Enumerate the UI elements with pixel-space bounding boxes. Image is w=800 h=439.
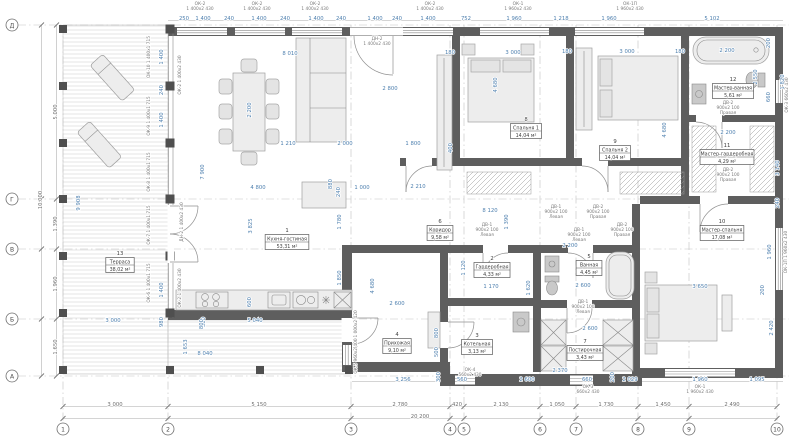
opening-tag: ОК-21 400х2 430 <box>186 1 213 12</box>
room-name: Мастер-гардеробная <box>701 151 754 157</box>
sofa-group <box>296 38 346 208</box>
dim-label: 8 040 <box>197 351 213 357</box>
opening-tag: ДН-2 1 400х2 430 <box>179 202 185 242</box>
grid-bubble-label: 2 <box>166 426 170 433</box>
room-name: Спальня 1 <box>513 125 539 131</box>
window-ok1p-right <box>776 228 783 290</box>
dim-label: 2 200 <box>720 130 736 136</box>
dim-label: 1 620 <box>526 280 532 296</box>
opening-tag: ОК-2 1 400х2 430 <box>177 55 183 94</box>
dim-label: 3 000 <box>505 50 521 56</box>
dim-label: 8 120 <box>482 208 498 214</box>
grid-bubble-label: 3 <box>349 426 353 433</box>
window-ok1-south <box>665 369 735 377</box>
room-area: 17,08 м² <box>712 235 733 241</box>
room-area: 5,61 м² <box>724 93 742 99</box>
dim-label: 3 000 <box>107 402 123 408</box>
room-number: 2 <box>490 256 493 262</box>
room-number: 5 <box>587 254 590 260</box>
room-area: 4,33 м² <box>483 272 501 278</box>
door-bedroom2 <box>582 158 608 193</box>
dim-label: 180 <box>562 49 573 55</box>
opening-tag: ДВ-1900х2 100Левая <box>544 204 567 220</box>
dim-label: 1 730 <box>598 402 614 408</box>
room-name: Коридор <box>429 227 451 233</box>
dim-label: 3 000 <box>619 49 635 55</box>
window-ok1p <box>575 28 644 35</box>
dim-label: 1 850 <box>337 270 343 286</box>
grid-bubble-label: 4 <box>448 426 452 433</box>
dim-label: 5 040 <box>247 318 263 324</box>
room-label-7: 7Постирочная3,43 м² <box>567 339 603 361</box>
room-area: 14,04 м² <box>516 133 537 139</box>
room-number: 1 <box>285 228 288 234</box>
window-ok2-3 <box>292 28 342 35</box>
dim-label: 1 450 <box>655 402 671 408</box>
dim-label: 2 800 <box>382 86 398 92</box>
dim-label: 420 <box>452 402 463 408</box>
dim-label: 2 600 <box>582 326 598 332</box>
dim-label: 660 <box>766 91 772 102</box>
grid-bubble-label: Г <box>10 196 14 203</box>
room-area: 38,02 м² <box>110 267 131 273</box>
dim-label: 2 000 <box>337 141 353 147</box>
room-name: Мастер-спальня <box>702 227 743 233</box>
dim-label: 3 650 <box>692 284 708 290</box>
grid-bubble-label: 7 <box>574 426 578 433</box>
opening-tag: ОК-1П 1 960х2 430 <box>783 231 789 274</box>
grid-bubble-label: 10 <box>773 426 781 433</box>
opening-tag: ОК-10 1 400х1 715 <box>146 36 152 78</box>
dim-label: 2 200 <box>562 243 578 249</box>
window-ok5-west <box>343 345 351 365</box>
dim-label: 2 370 <box>552 368 568 374</box>
closet-hatch-corridor-2 <box>620 172 684 194</box>
room-area: 4,45 м² <box>580 270 598 276</box>
dim-label: 5 000 <box>53 104 59 120</box>
grid-bubble-label: 9 <box>687 426 691 433</box>
room-number: 11 <box>724 143 731 149</box>
room-area: 4,29 м² <box>718 159 736 165</box>
opening-tag: ДВ-2900х2 100Правая <box>610 222 633 238</box>
dim-label: 1 210 <box>280 141 296 147</box>
opening-tag: ДВ-1900х2 100Левая <box>475 222 498 238</box>
dim-label: 1 960 <box>53 276 59 292</box>
opening-tag: ОК-1П1 960х2 430 <box>616 1 643 12</box>
dim-label: 1 653 <box>183 339 189 354</box>
opening-tag: ОК-9 1 400х1 715 <box>146 96 152 135</box>
room-label-10: 10Мастер-спальня17,08 м² <box>700 219 744 241</box>
dim-label: 1 960 <box>767 244 773 260</box>
room-number: 10 <box>719 219 726 225</box>
dim-label: 1 400 <box>159 282 165 298</box>
floor-plan-svg: 2501 4002401 4002401 4002401 4002401 400… <box>0 0 800 439</box>
room-area: 9,58 м² <box>431 235 449 241</box>
room-area: 3,13 м² <box>468 349 486 355</box>
dim-label: 1 095 <box>749 377 764 383</box>
glazed-wall-west <box>169 27 174 318</box>
dim-label: 300 <box>436 371 442 382</box>
wardrobe-mirror-right <box>576 48 592 130</box>
dim-label: 7 900 <box>200 164 206 180</box>
opening-tag: ДВ-1900х2 100Левая <box>567 227 590 243</box>
room-label-3: 3Котельная3,13 м² <box>462 333 493 355</box>
dim-label: 3 000 <box>105 318 121 324</box>
room-number: 7 <box>583 339 586 345</box>
dim-label: 240 <box>280 16 291 22</box>
dim-label: 2 550 <box>753 69 759 85</box>
dim-label: 500 <box>434 346 440 357</box>
room-label-9: 9Спальня 214,04 м² <box>600 139 631 161</box>
dim-label: 800 <box>199 318 205 329</box>
dim-label: 1 400 <box>367 16 383 22</box>
dim-label: 2 780 <box>392 402 408 408</box>
boiler-unit <box>513 312 529 332</box>
dim-label: 752 <box>461 16 471 22</box>
dim-label: 3 140 <box>775 160 781 176</box>
opening-tag: ОК-2 1 400х2 430 <box>177 268 183 307</box>
dim-label: 2 210 <box>410 184 426 190</box>
dim-label: 200 <box>760 284 766 295</box>
dim-label: 4 680 <box>493 77 499 93</box>
dim-label: 250 <box>179 16 190 22</box>
opening-tag: ОК-5 960х2 400 <box>353 338 359 373</box>
dim-label: 1 400 <box>251 16 267 22</box>
opening-tag: ДВ-2900х2 100Правая <box>716 167 739 183</box>
grid-bubble-label: 8 <box>636 426 640 433</box>
room-label-1: 1Кухня-гостиная53,31 м² <box>265 228 309 250</box>
room-label-4: 4Прихожая9,10 м² <box>383 332 411 354</box>
opening-tag: ОК-8 1 400х1 715 <box>146 152 152 191</box>
dim-label: 4 680 <box>662 122 668 138</box>
dim-label: 1 800 <box>405 141 421 147</box>
dim-label: 1 400 <box>195 16 211 22</box>
opening-tag: ОК-3 660х2 430 <box>784 77 790 112</box>
opening-tag: ДН-21 400х2 430 <box>363 36 390 47</box>
room-number: 12 <box>730 77 737 83</box>
dim-label: 5 150 <box>251 402 267 408</box>
dim-label: 2 600 <box>519 377 535 383</box>
dim-label: 240 <box>775 197 781 208</box>
room-name: Ванная <box>580 262 598 268</box>
grid-bubble-label: Б <box>10 316 14 323</box>
dim-label: 240 <box>336 16 347 22</box>
room-name: Терраса <box>109 259 131 265</box>
dim-label: 1 000 <box>354 185 370 191</box>
opening-tag: ОК-4560х2 430 <box>458 367 481 378</box>
room-label-2: 2Гардеробная4,33 м² <box>474 256 510 278</box>
dim-label: 1 400 <box>159 49 165 65</box>
kitchen-counter <box>176 290 352 310</box>
room-name: Прихожая <box>384 340 410 346</box>
grid-bubble-label: 6 <box>538 426 542 433</box>
dim-label: 1 960 <box>692 377 708 383</box>
dim-label: 180 <box>675 49 686 55</box>
opening-tag: ОК-21 400х2 430 <box>243 1 270 12</box>
dim-label: 240 <box>392 16 403 22</box>
dim-label: 1 120 <box>461 260 467 276</box>
window-ok2-4 <box>403 28 453 35</box>
room-name: Мастер-ванная <box>714 85 752 91</box>
opening-tag: ОК-11 960х2 430 <box>504 1 531 12</box>
room-name: Гардеробная <box>475 264 508 270</box>
window-ok2-2 <box>235 28 285 35</box>
dim-label: 4 680 <box>370 278 376 294</box>
dim-label: 1 170 <box>483 284 499 290</box>
dim-label: 1 780 <box>337 214 343 230</box>
dim-label: 1 400 <box>420 16 436 22</box>
closet-hatch-corridor-1 <box>467 172 531 194</box>
dim-label: 1 960 <box>601 16 617 22</box>
dim-label: 8 010 <box>282 51 298 57</box>
opening-tag: ОК-6 1 400х1 715 <box>146 263 152 302</box>
room-area: 9,10 м² <box>388 348 406 354</box>
room-area: 14,04 м² <box>605 155 626 161</box>
opening-tag: ОК-11 960х2 430 <box>686 384 713 395</box>
dim-label: 2 600 <box>575 283 591 289</box>
dim-label: 20 200 <box>411 414 430 420</box>
room-number: 13 <box>117 251 124 257</box>
dim-label: 2 420 <box>769 320 775 336</box>
bed-2 <box>598 56 678 120</box>
dim-label: 3 256 <box>395 377 411 383</box>
room-number: 6 <box>438 219 442 225</box>
room-area: 3,43 м² <box>576 355 594 361</box>
dim-label: 980 <box>159 316 165 327</box>
door-dn1-entry <box>342 318 379 344</box>
dim-label: 2 200 <box>719 48 735 54</box>
room-number: 3 <box>475 333 478 339</box>
dim-label: 2 200 <box>247 102 253 118</box>
dim-label: 400 <box>448 142 454 153</box>
grid-bubble-label: 1 <box>61 426 65 433</box>
room-name: Спальня 2 <box>602 147 628 153</box>
room-name: Постирочная <box>569 347 602 353</box>
dim-label: 10 000 <box>38 190 44 209</box>
grid-bubble-label: В <box>10 246 14 253</box>
dim-label: 880 <box>328 178 334 189</box>
dim-label: 240 <box>336 186 342 197</box>
dim-label: 1 390 <box>53 216 59 232</box>
room-label-5: 5Ванная4,45 м² <box>576 254 602 276</box>
dim-label: 1 960 <box>506 16 522 22</box>
room-label-6: 6Коридор9,58 м² <box>427 219 453 241</box>
room-number: 9 <box>613 139 616 145</box>
dim-label: 600 <box>247 296 253 307</box>
dim-label: 3 825 <box>248 218 254 233</box>
dim-label: 2 130 <box>493 402 509 408</box>
window-ok2-1 <box>177 28 227 35</box>
grid-bubble-label: Д <box>10 22 15 29</box>
dim-label: 9 908 <box>76 195 82 211</box>
dim-label: 1 650 <box>53 339 59 355</box>
room-number: 4 <box>395 332 399 338</box>
dim-label: 1 050 <box>549 402 565 408</box>
opening-tag: ОК-21 400х2 430 <box>301 1 328 12</box>
window-ok1 <box>480 28 549 35</box>
dim-label: 2 490 <box>724 402 740 408</box>
opening-tag: ОК-7 1 400х1 715 <box>146 205 152 244</box>
opening-tag: ДВ-2900х2 100Правая <box>716 100 739 116</box>
dim-label: 180 <box>445 50 456 56</box>
dim-label: 240 <box>159 84 165 95</box>
dim-label: 2 600 <box>389 301 405 307</box>
door-dn2-top <box>350 28 403 76</box>
dim-label: 4 800 <box>250 185 266 191</box>
dim-label: 1 218 <box>553 16 569 22</box>
dim-label: 5 102 <box>704 16 719 22</box>
dim-label: 660 <box>582 377 593 383</box>
room-name: Котельная <box>464 341 491 347</box>
opening-tag: ОК-21 400х2 430 <box>416 1 443 12</box>
dim-label: 800 <box>434 327 440 338</box>
floor-plan-canvas: 2501 4002401 4002401 4002401 4002401 400… <box>0 0 800 439</box>
room-area: 53,31 м² <box>277 244 298 250</box>
dim-label: 1 390 <box>504 214 510 230</box>
dim-label: 1 400 <box>308 16 324 22</box>
dim-label: 200 <box>610 371 616 382</box>
dim-label: 2 029 <box>622 377 637 383</box>
opening-tag: ДВ-2900х2 100Правая <box>586 204 609 220</box>
master-bed <box>645 272 732 354</box>
grid-bubble-label: 5 <box>462 426 466 433</box>
dim-label: 200 <box>766 37 772 48</box>
dim-label: 1 400 <box>159 112 165 128</box>
room-name: Кухня-гостиная <box>267 236 307 242</box>
dim-label: 240 <box>224 16 235 22</box>
